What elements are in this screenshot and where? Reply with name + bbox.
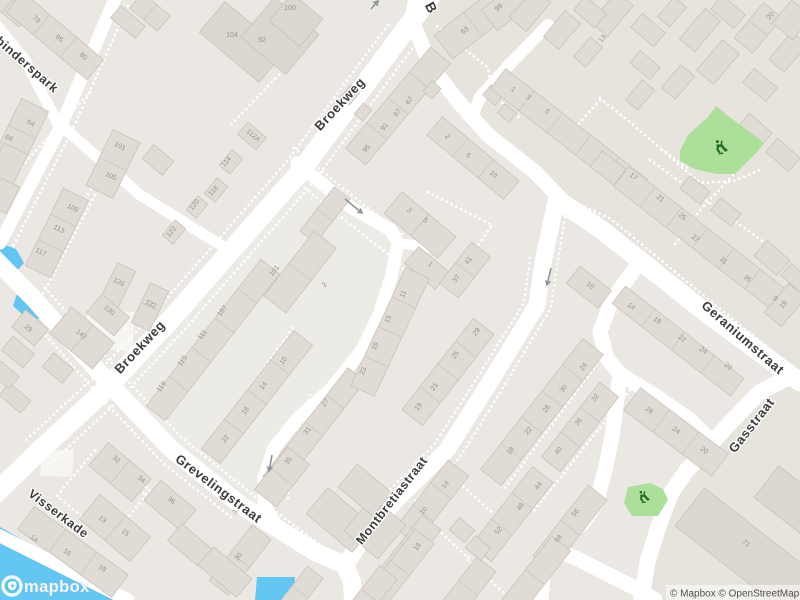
svg-text:100: 100 (284, 5, 296, 12)
svg-text:© Mapbox © OpenStreetMap: © Mapbox © OpenStreetMap (670, 589, 800, 600)
svg-text:92: 92 (258, 37, 266, 44)
svg-text:mapbox: mapbox (24, 578, 90, 596)
svg-text:104: 104 (226, 32, 238, 39)
